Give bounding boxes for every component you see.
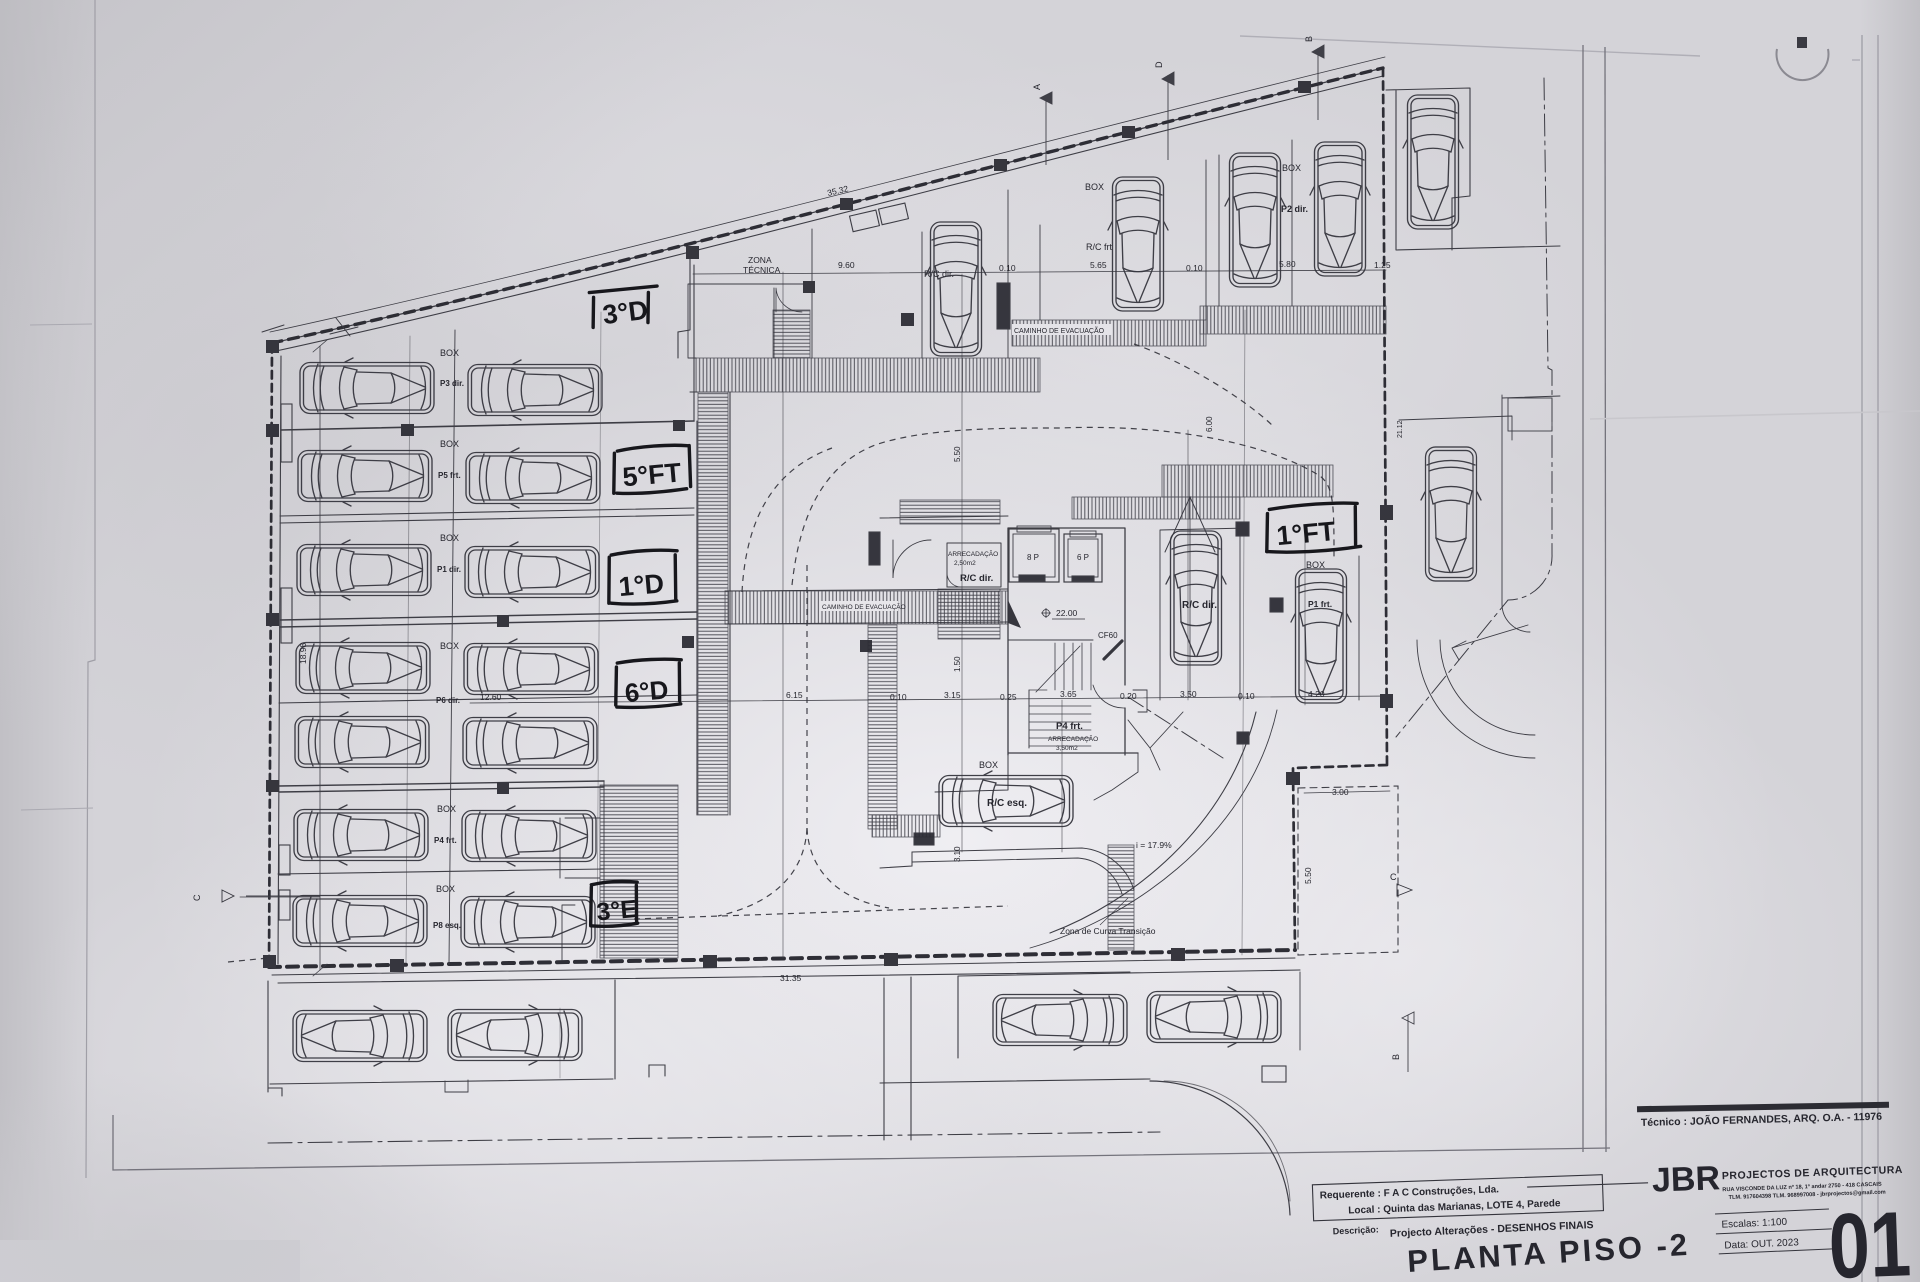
svg-text:0.25: 0.25 bbox=[1000, 692, 1017, 702]
svg-text:6.15: 6.15 bbox=[786, 690, 803, 700]
svg-text:R/C dir.: R/C dir. bbox=[924, 269, 954, 279]
svg-text:3°D: 3°D bbox=[601, 295, 650, 330]
svg-text:ARRECADAÇÃO: ARRECADAÇÃO bbox=[948, 549, 998, 558]
svg-text:P6 dir.: P6 dir. bbox=[436, 696, 460, 705]
svg-text:BOX: BOX bbox=[1085, 182, 1104, 192]
svg-text:Zona de Curva Transição: Zona de Curva Transição bbox=[1060, 926, 1156, 936]
svg-text:BOX: BOX bbox=[436, 884, 455, 894]
svg-text:JBR: JBR bbox=[1651, 1159, 1720, 1199]
svg-text:18.98: 18.98 bbox=[298, 642, 308, 664]
svg-text:31.35: 31.35 bbox=[780, 973, 802, 983]
svg-text:P5 frt.: P5 frt. bbox=[438, 471, 461, 480]
svg-text:BOX: BOX bbox=[437, 804, 456, 814]
svg-text:1.50: 1.50 bbox=[953, 656, 962, 672]
svg-text:6 P: 6 P bbox=[1077, 553, 1089, 562]
svg-text:2,50m2: 2,50m2 bbox=[954, 560, 976, 567]
svg-text:P3 dir.: P3 dir. bbox=[440, 379, 464, 388]
svg-text:TÉCNICA: TÉCNICA bbox=[743, 265, 781, 275]
svg-text:ARRECADAÇÃO: ARRECADAÇÃO bbox=[1048, 734, 1098, 743]
svg-text:R/C frt: R/C frt bbox=[1086, 242, 1112, 252]
svg-text:0.10: 0.10 bbox=[1238, 691, 1255, 701]
svg-text:BOX: BOX bbox=[1306, 560, 1325, 570]
svg-text:5.65: 5.65 bbox=[1090, 260, 1107, 270]
svg-text:P4 frt.: P4 frt. bbox=[434, 836, 457, 845]
svg-text:P4 frt.: P4 frt. bbox=[1056, 721, 1083, 732]
svg-text:A: A bbox=[1032, 84, 1042, 90]
svg-text:BOX: BOX bbox=[1282, 163, 1301, 173]
svg-text:Descrição:: Descrição: bbox=[1332, 1224, 1378, 1236]
svg-text:22.00: 22.00 bbox=[1056, 608, 1078, 618]
svg-text:ZONA: ZONA bbox=[748, 255, 772, 265]
svg-text:12.60: 12.60 bbox=[480, 692, 502, 702]
svg-text:B: B bbox=[1304, 36, 1314, 42]
svg-text:P1 dir.: P1 dir. bbox=[437, 565, 461, 574]
svg-text:BOX: BOX bbox=[440, 439, 459, 449]
svg-text:P1 frt.: P1 frt. bbox=[1308, 599, 1332, 609]
svg-text:3.65: 3.65 bbox=[1060, 689, 1077, 699]
svg-text:P8 esq.: P8 esq. bbox=[433, 921, 461, 930]
svg-text:5.80: 5.80 bbox=[1279, 259, 1296, 269]
svg-text:4.20: 4.20 bbox=[1308, 689, 1325, 699]
svg-text:0.10: 0.10 bbox=[890, 692, 907, 702]
svg-text:1°D: 1°D bbox=[617, 568, 665, 602]
svg-text:CF60: CF60 bbox=[1098, 631, 1118, 640]
svg-text:21.12: 21.12 bbox=[1397, 420, 1404, 438]
svg-text:5.50: 5.50 bbox=[953, 446, 962, 462]
svg-text:3.15: 3.15 bbox=[944, 690, 961, 700]
svg-text:CAMINHO DE EVACUAÇÃO: CAMINHO DE EVACUAÇÃO bbox=[1014, 326, 1105, 335]
svg-text:5.50: 5.50 bbox=[1303, 867, 1313, 884]
svg-text:i = 17.9%: i = 17.9% bbox=[1136, 840, 1172, 850]
svg-text:3.10: 3.10 bbox=[953, 846, 962, 862]
svg-text:8 P: 8 P bbox=[1027, 553, 1039, 562]
svg-text:3°E: 3°E bbox=[595, 895, 638, 926]
svg-text:R/C dir.: R/C dir. bbox=[960, 573, 993, 584]
svg-text:C: C bbox=[192, 894, 202, 901]
svg-text:1.25: 1.25 bbox=[1374, 260, 1391, 270]
svg-text:5°FT: 5°FT bbox=[621, 457, 683, 492]
svg-text:6°D: 6°D bbox=[623, 674, 669, 708]
svg-text:0.10: 0.10 bbox=[999, 263, 1016, 273]
svg-text:3.00: 3.00 bbox=[1332, 787, 1349, 797]
svg-text:D: D bbox=[1154, 61, 1164, 68]
svg-text:C: C bbox=[1390, 872, 1397, 882]
svg-text:0.10: 0.10 bbox=[1186, 263, 1203, 273]
svg-text:CAMINHO DE EVACUAÇÃO: CAMINHO DE EVACUAÇÃO bbox=[822, 602, 906, 611]
svg-text:1°FT: 1°FT bbox=[1275, 516, 1337, 551]
svg-text:BOX: BOX bbox=[979, 760, 998, 770]
svg-text:3.50: 3.50 bbox=[1180, 689, 1197, 699]
svg-text:BOX: BOX bbox=[440, 348, 459, 358]
svg-text:3,50m2: 3,50m2 bbox=[1056, 745, 1078, 752]
svg-text:R/C esq.: R/C esq. bbox=[987, 798, 1027, 809]
svg-text:BOX: BOX bbox=[440, 641, 459, 651]
svg-text:0.20: 0.20 bbox=[1120, 691, 1137, 701]
svg-text:P2 dir.: P2 dir. bbox=[1281, 204, 1308, 214]
svg-text:B: B bbox=[1391, 1054, 1401, 1060]
svg-text:BOX: BOX bbox=[440, 533, 459, 543]
svg-text:9.60: 9.60 bbox=[838, 260, 855, 270]
svg-text:01: 01 bbox=[1827, 1192, 1912, 1282]
svg-text:R/C dir.: R/C dir. bbox=[1182, 600, 1217, 611]
svg-text:6.00: 6.00 bbox=[1205, 416, 1214, 432]
